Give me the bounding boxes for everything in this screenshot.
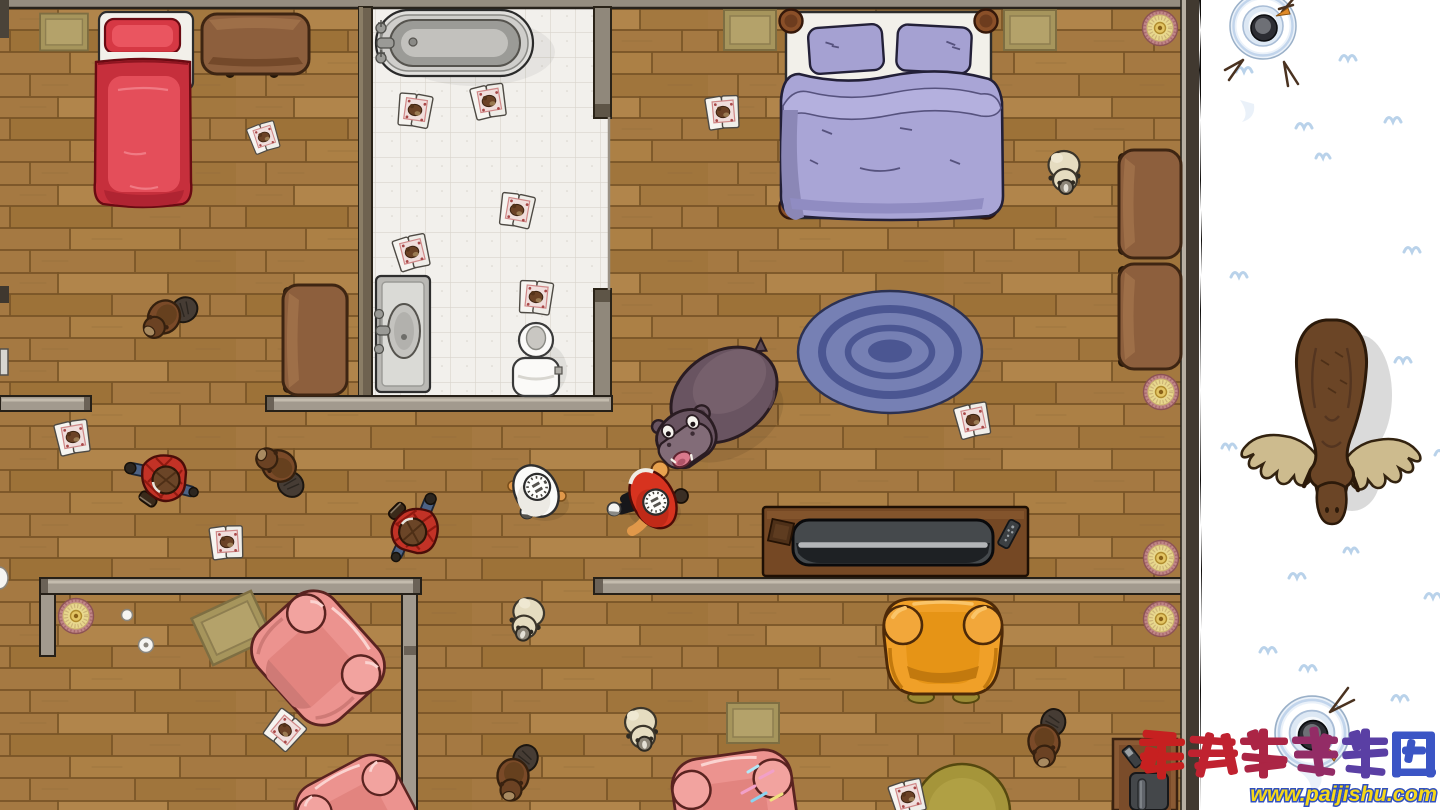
svg-text:www.paijishu.com: www.paijishu.com (1250, 782, 1437, 806)
